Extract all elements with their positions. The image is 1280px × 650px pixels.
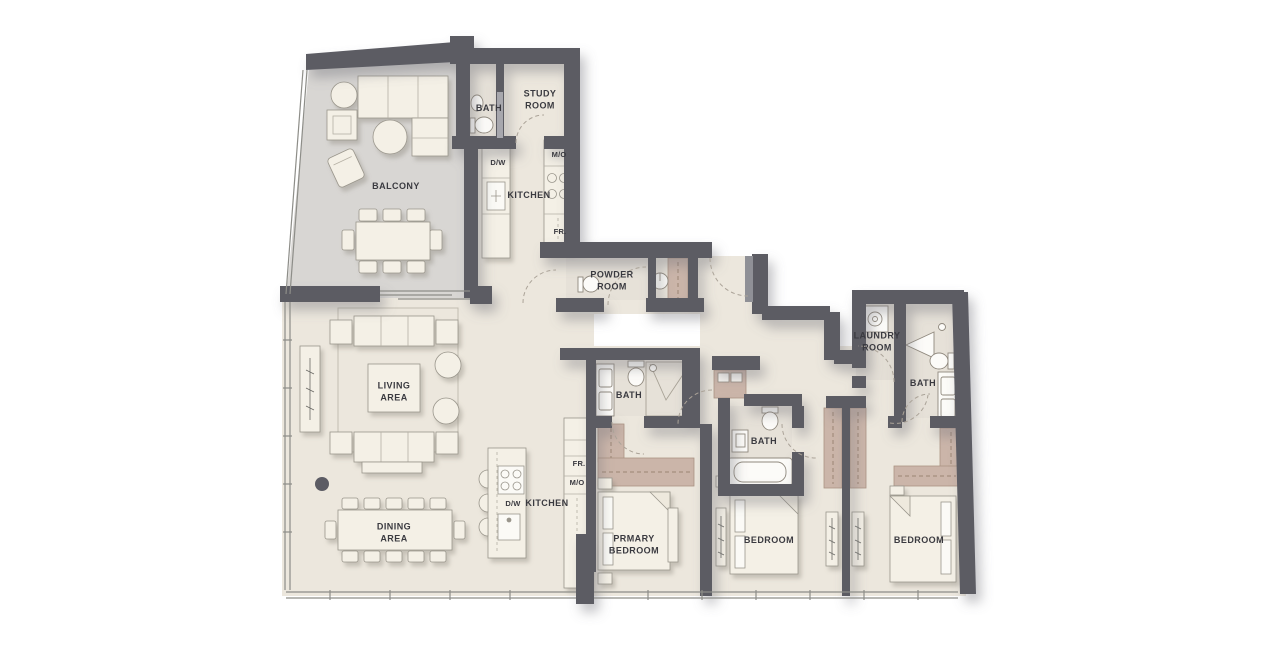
sink: [941, 399, 955, 417]
entry-door-leaf: [745, 256, 753, 302]
living-armchair-2: [433, 398, 459, 424]
dining-table: [338, 510, 452, 550]
sink: [732, 430, 748, 452]
tv-console-corridor-east: [852, 512, 864, 566]
living-sofa-north: [330, 316, 458, 346]
living-coffee-table: [368, 364, 420, 412]
primary-bed: [598, 478, 678, 584]
toilet: [930, 353, 954, 369]
sink: [471, 95, 483, 111]
dining-set: [325, 498, 465, 562]
tv-console-corridor-west: [826, 512, 838, 566]
living-armchair-1: [435, 352, 461, 378]
pocket-door: [497, 92, 503, 138]
bathtub: [728, 458, 792, 486]
balcony-round-table: [373, 120, 407, 154]
balcony-round-chair: [331, 82, 357, 108]
floor-plan-drawing: [0, 0, 1280, 650]
tv-console-bedroom2: [716, 508, 726, 566]
sink: [599, 392, 612, 410]
balcony-armchair: [327, 110, 357, 140]
toilet: [578, 276, 599, 292]
toilet: [762, 407, 778, 430]
floor-plan-page: BALCONY BATH STUDY ROOM KITCHEN POWDER R…: [0, 0, 1280, 650]
column: [315, 477, 329, 491]
balcony-dining-table: [356, 222, 430, 260]
sink: [941, 377, 955, 395]
tv-console-living: [300, 346, 320, 432]
bedroom3-bed: [890, 486, 956, 582]
sink: [599, 369, 612, 387]
toilet: [470, 117, 493, 133]
toilet: [628, 361, 644, 386]
